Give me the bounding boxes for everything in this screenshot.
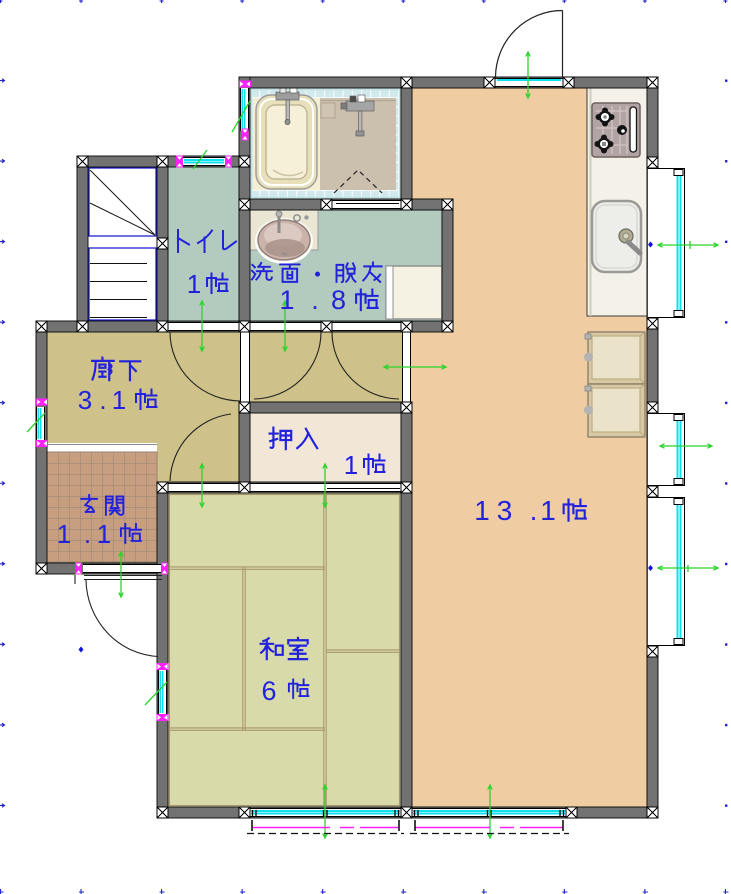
svg-text:.: . <box>84 519 91 549</box>
svg-text:3: 3 <box>78 385 92 415</box>
svg-text:1: 1 <box>187 269 201 299</box>
svg-text:1: 1 <box>97 519 111 549</box>
svg-text:1: 1 <box>57 519 71 549</box>
svg-text:.: . <box>530 495 538 526</box>
svg-text:6: 6 <box>261 676 276 706</box>
svg-text:8: 8 <box>331 285 346 315</box>
svg-text:1: 1 <box>344 450 358 480</box>
svg-text:1: 1 <box>474 495 490 526</box>
svg-text:1: 1 <box>279 285 294 315</box>
svg-text:3: 3 <box>497 495 513 526</box>
svg-text:.: . <box>311 285 319 315</box>
svg-text:.: . <box>99 385 106 415</box>
svg-text:1: 1 <box>112 385 126 415</box>
svg-text:1: 1 <box>540 495 556 526</box>
